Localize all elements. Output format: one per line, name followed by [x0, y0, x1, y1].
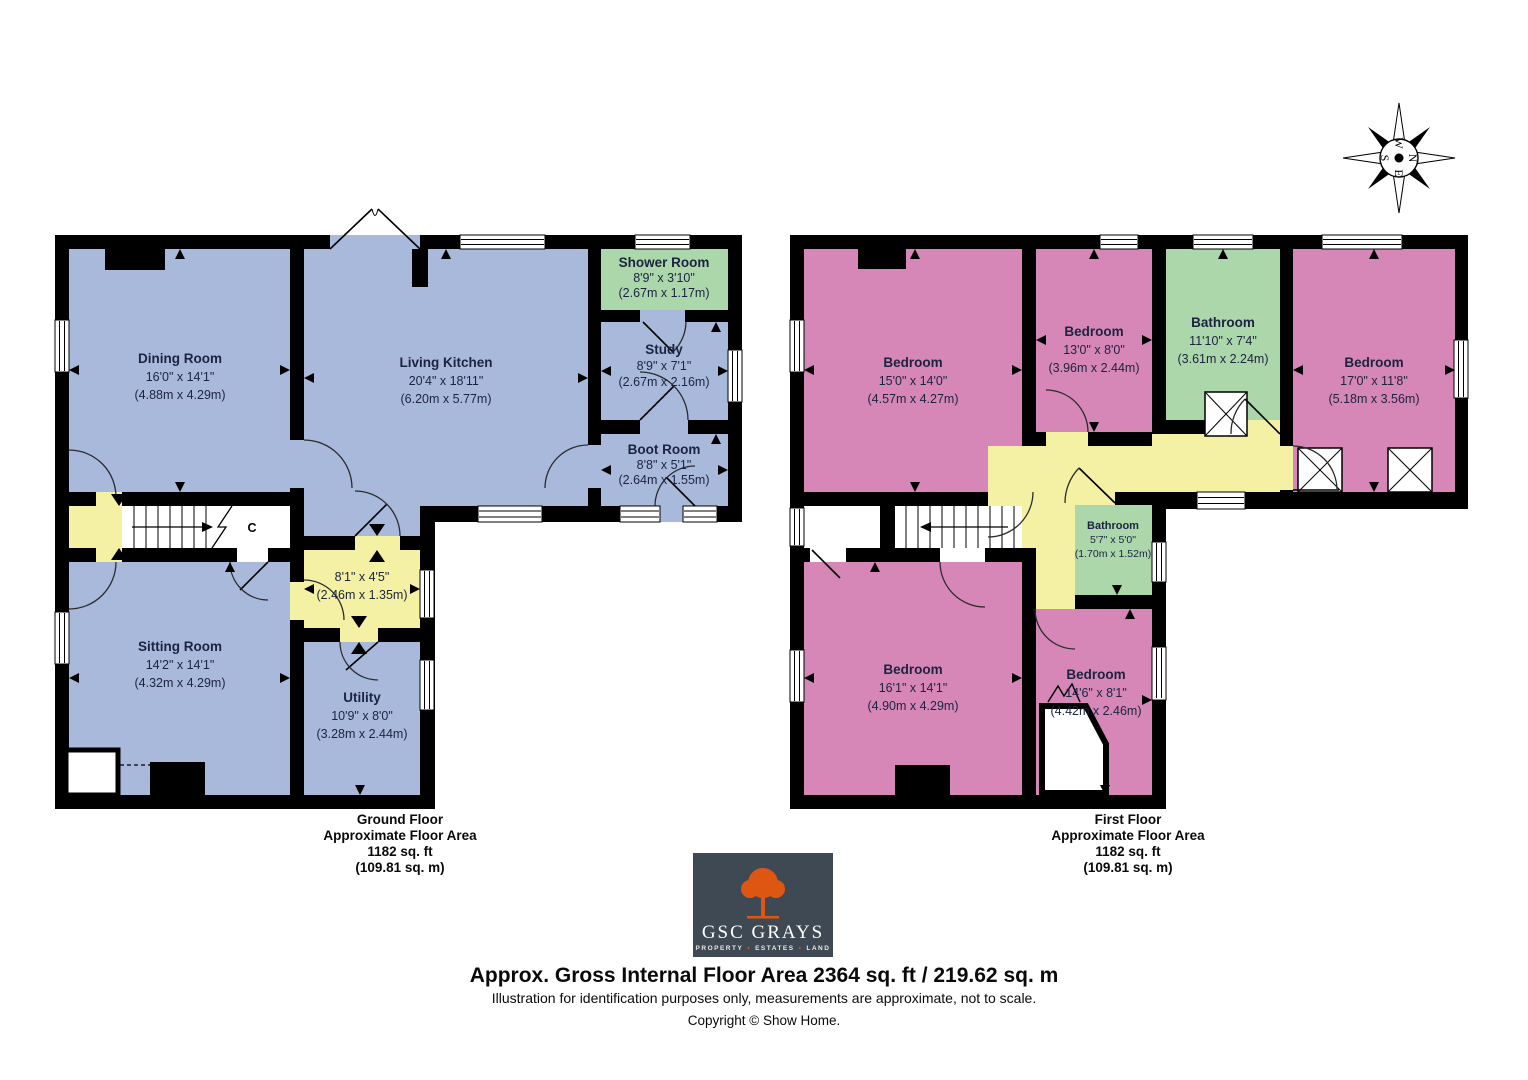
entry-hall: [69, 506, 122, 548]
room-dim: 8'9" x 7'1": [637, 359, 692, 373]
logo-name: GSC GRAYS: [702, 922, 824, 943]
room-label: Shower Room: [619, 255, 710, 270]
room-label: Bedroom: [1064, 324, 1123, 339]
room-dim: 11'10" x 7'4": [1189, 334, 1257, 348]
window: [420, 660, 434, 710]
compass-east-label: E: [1392, 169, 1406, 176]
room-dim: (4.57m x 4.27m): [867, 392, 958, 406]
room-dim: (1.70m x 1.52m): [1075, 548, 1151, 560]
window: [728, 350, 742, 402]
room-dim: (3.28m x 2.44m): [316, 727, 407, 741]
porch-recess: [66, 750, 118, 795]
logo-tagline: PROPERTY•ESTATES•LAND: [696, 945, 831, 952]
room-label: Living Kitchen: [399, 355, 492, 370]
footer: Approx. Gross Internal Floor Area 2364 s…: [470, 964, 1059, 1028]
landing-4: [1036, 492, 1075, 609]
chimney-breast: [150, 762, 205, 795]
window: [1100, 235, 1138, 249]
window: [1152, 647, 1166, 700]
stair-void: [804, 506, 880, 548]
first-floor-plan: Bedroom 15'0" x 14'0" (4.57m x 4.27m) Be…: [790, 235, 1468, 875]
room-label: Bedroom: [1344, 355, 1403, 370]
floorplan-page: C: [0, 0, 1528, 1080]
room-dim: 8'9" x 3'10": [633, 271, 695, 285]
room-dim: 20'4" x 18'11": [409, 374, 484, 388]
room-dim: (3.96m x 2.44m): [1048, 361, 1139, 375]
room-dim: 17'0" x 11'8": [1340, 374, 1408, 388]
window: [1454, 340, 1468, 398]
ground-stairs: C: [122, 506, 290, 548]
caption-line: 1182 sq. ft: [1095, 844, 1161, 859]
room-dim: (4.42m x 2.46m): [1050, 704, 1141, 718]
room-label: Bathroom: [1087, 520, 1139, 532]
room-dim: (2.64m x 1.55m): [618, 473, 709, 487]
compass-south-label: S: [1378, 155, 1392, 162]
room-bedroom2: [1036, 249, 1152, 432]
window: [55, 320, 69, 372]
first-stairs: [804, 506, 1022, 548]
room-dim: (4.32m x 4.29m): [134, 676, 225, 690]
window: [1193, 235, 1253, 249]
window: [635, 235, 690, 249]
fixture-box: [1388, 448, 1432, 492]
french-door-curve: [372, 209, 378, 216]
room-label: Utility: [343, 690, 381, 705]
window: [790, 650, 804, 702]
caption-line: 1182 sq. ft: [367, 844, 433, 859]
room-dim: 14'2" x 14'1": [146, 658, 215, 672]
window: [1197, 492, 1245, 509]
room-dim: (2.67m x 1.17m): [618, 286, 709, 300]
room-label: Sitting Room: [138, 639, 222, 654]
room-dim: 14'6" x 8'1": [1065, 686, 1127, 700]
window: [790, 508, 804, 546]
agency-logo: GSC GRAYS PROPERTY•ESTATES•LAND: [693, 853, 833, 957]
compass-rose-icon: W N S E: [1343, 103, 1455, 213]
room-label: Dining Room: [138, 351, 222, 366]
room-dim: 15'0" x 14'0": [879, 374, 948, 388]
wall-pillar: [412, 249, 428, 287]
room-dim: (3.61m x 2.24m): [1177, 352, 1268, 366]
room-label: Bedroom: [883, 662, 942, 677]
window: [790, 320, 804, 372]
room-dim: 16'1" x 14'1": [879, 681, 948, 695]
window: [460, 235, 545, 249]
landing-3: [1152, 434, 1280, 492]
room-dim: (2.46m x 1.35m): [316, 588, 407, 602]
chimney-breast: [895, 765, 950, 795]
window: [478, 506, 542, 522]
room-dim: 5'7" x 5'0": [1090, 534, 1136, 546]
window: [620, 506, 660, 522]
compass-north-label: N: [1406, 154, 1420, 163]
room-label: Bedroom: [883, 355, 942, 370]
window: [683, 506, 717, 522]
ground-floor-caption: Ground Floor Approximate Floor Area 1182…: [323, 812, 477, 875]
closet-label: C: [247, 521, 256, 535]
room-dim: (6.20m x 5.77m): [400, 392, 491, 406]
room-dim: (4.88m x 4.29m): [134, 388, 225, 402]
room-dim: (4.90m x 4.29m): [867, 699, 958, 713]
window: [420, 570, 434, 618]
window: [1322, 235, 1402, 249]
fixture-box: [1205, 392, 1247, 436]
caption-line: Approximate Floor Area: [1051, 828, 1205, 843]
ground-floor-plan: C: [55, 209, 742, 875]
room-dim: 8'1" x 4'5": [335, 570, 390, 584]
room-label: Bedroom: [1066, 667, 1125, 682]
copyright-text: Copyright © Show Home.: [688, 1013, 841, 1028]
room-bedroom4: [804, 562, 1022, 795]
caption-line: Ground Floor: [357, 812, 444, 827]
caption-line: (109.81 sq. m): [355, 860, 444, 875]
gross-area-headline: Approx. Gross Internal Floor Area 2364 s…: [470, 964, 1059, 987]
caption-line: First Floor: [1095, 812, 1162, 827]
compass-center-dot: [1395, 154, 1404, 163]
room-label: Boot Room: [628, 442, 701, 457]
room-dim: 10'9" x 8'0": [331, 709, 393, 723]
compass-west-label: W: [1392, 137, 1406, 149]
chimney-breast: [858, 249, 906, 269]
room-dim: 8'8" x 5'1": [637, 458, 692, 472]
caption-line: (109.81 sq. m): [1083, 860, 1172, 875]
room-dim: (5.18m x 3.56m): [1328, 392, 1419, 406]
room-dim: (2.67m x 2.16m): [618, 375, 709, 389]
window: [55, 612, 69, 664]
caption-line: Approximate Floor Area: [323, 828, 477, 843]
disclaimer-text: Illustration for identification purposes…: [492, 990, 1036, 1006]
room-dim: 13'0" x 8'0": [1063, 343, 1125, 357]
chimney-breast: [105, 249, 165, 270]
room-label: Study: [645, 342, 683, 357]
window: [1152, 542, 1166, 582]
landing-2: [1036, 446, 1166, 492]
room-label: Bathroom: [1191, 315, 1255, 330]
first-floor-caption: First Floor Approximate Floor Area 1182 …: [1051, 812, 1205, 875]
room-dim: 16'0" x 14'1": [146, 370, 215, 384]
